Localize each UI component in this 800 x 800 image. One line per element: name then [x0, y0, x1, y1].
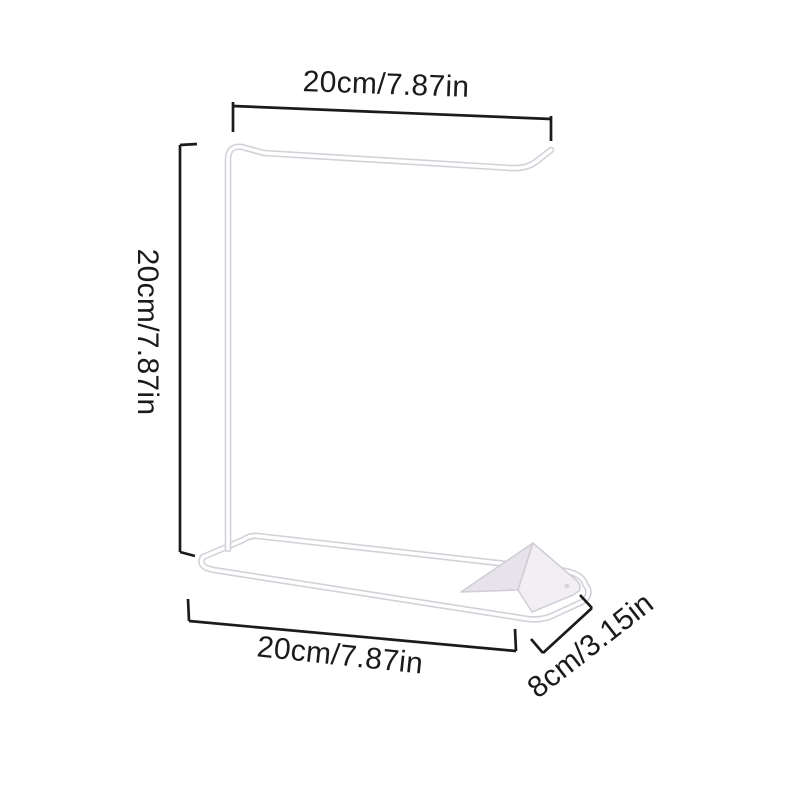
- product-dimension-diagram: 20cm/7.87in 20cm/7.87in 20cm/7.87in 8cm/…: [0, 0, 800, 800]
- dimension-label-top-width: 20cm/7.87in: [302, 67, 470, 103]
- bag-plate: [461, 543, 580, 612]
- dimension-line-height: [180, 144, 197, 556]
- product-illustration: [0, 0, 800, 800]
- plate-hole: [564, 584, 569, 588]
- dimension-label-side-height: 20cm/7.87in: [132, 249, 162, 416]
- frame-wire: [228, 147, 551, 549]
- dimension-line-top-width: [233, 102, 551, 141]
